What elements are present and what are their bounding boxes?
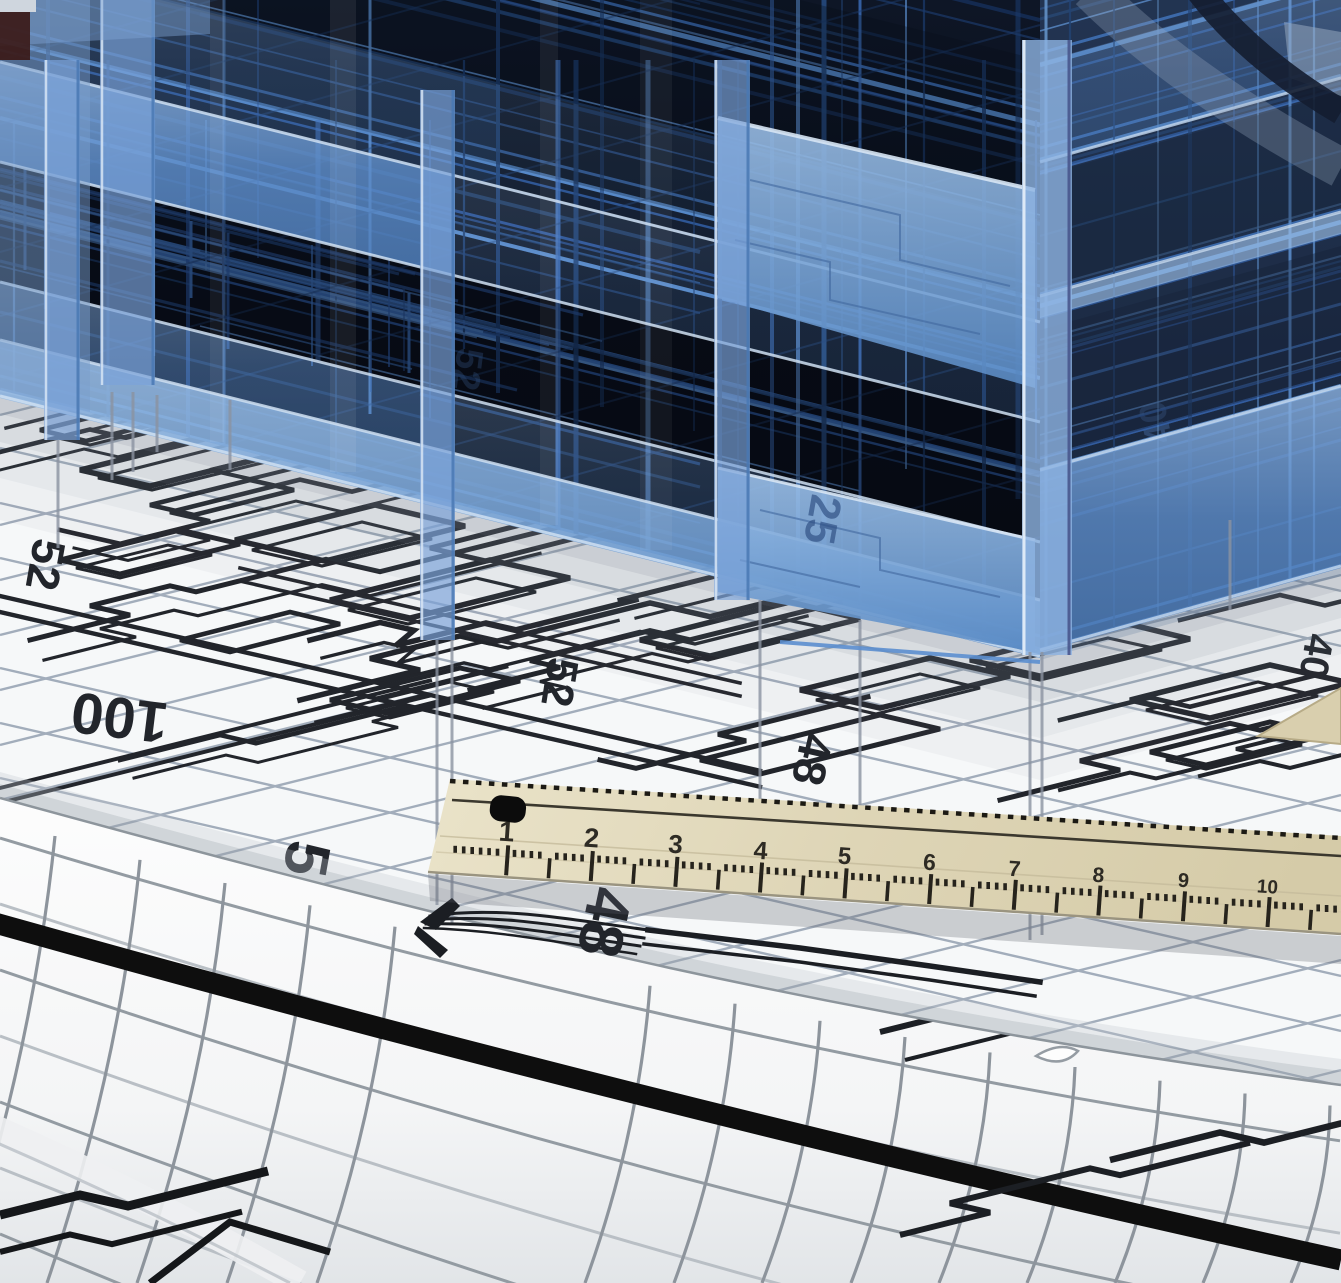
svg-text:9: 9 bbox=[1177, 870, 1190, 893]
svg-text:6: 6 bbox=[922, 849, 937, 876]
svg-text:3: 3 bbox=[667, 829, 684, 860]
svg-text:2: 2 bbox=[583, 823, 600, 854]
svg-text:8: 8 bbox=[1092, 864, 1106, 888]
svg-text:4: 4 bbox=[753, 837, 769, 866]
svg-text:7: 7 bbox=[1008, 856, 1022, 882]
svg-text:5: 5 bbox=[837, 843, 852, 871]
svg-text:10: 10 bbox=[1256, 876, 1279, 898]
svg-text:100: 100 bbox=[68, 679, 172, 755]
svg-text:52: 52 bbox=[16, 535, 76, 594]
svg-text:25: 25 bbox=[794, 491, 851, 548]
svg-text:1: 1 bbox=[498, 816, 516, 848]
